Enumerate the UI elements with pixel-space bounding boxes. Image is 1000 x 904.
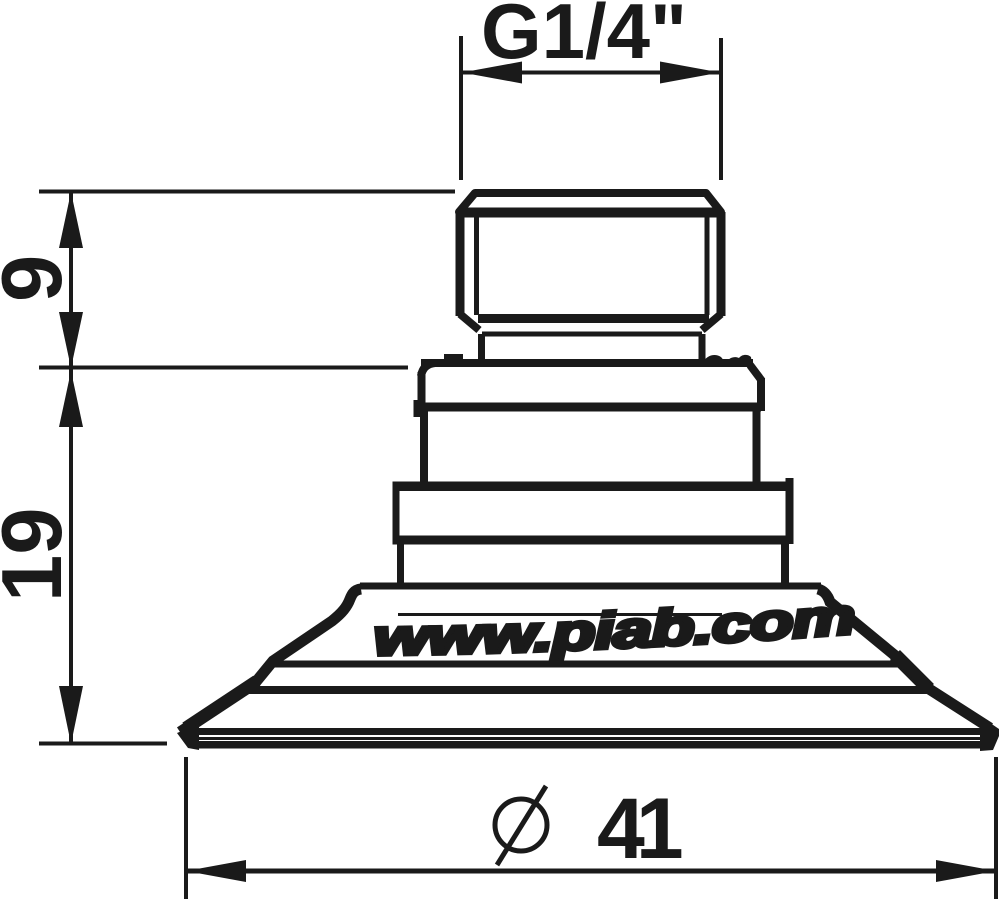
svg-text:41: 41 — [597, 781, 682, 877]
svg-text:9: 9 — [0, 255, 80, 302]
svg-text:19: 19 — [0, 507, 80, 602]
